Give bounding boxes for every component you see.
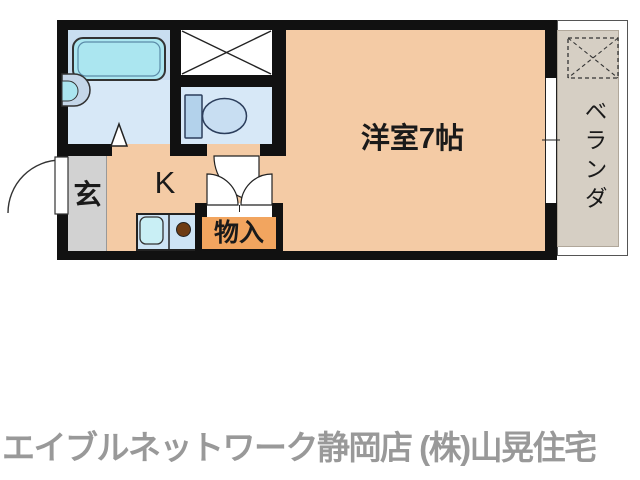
kitchen-label: K bbox=[136, 167, 194, 198]
stove-burner-icon bbox=[177, 223, 191, 237]
door-swing-icon bbox=[8, 160, 61, 213]
kitchen-sink-icon bbox=[140, 217, 163, 244]
floor-plan-page: 玄 K 物入 洋室7帖 ベランダ エイブルネットワーク静岡店 (株)山晃住宅 bbox=[0, 0, 640, 480]
toilet-icon bbox=[203, 99, 247, 134]
storage-label: 物入 bbox=[202, 221, 276, 246]
balcony-label: ベランダ bbox=[582, 99, 605, 215]
toilet-tank bbox=[185, 95, 202, 138]
company-name-text: エイブルネットワーク静岡店 (株)山晃住宅 bbox=[2, 421, 640, 469]
entrance-label: 玄 bbox=[67, 181, 108, 209]
folding-door-triangle-icon bbox=[111, 124, 127, 146]
bathtub-icon bbox=[73, 38, 165, 80]
fixtures-layer bbox=[0, 0, 640, 480]
main-room-label: 洋室7帖 bbox=[310, 125, 515, 154]
washbasin-bowl bbox=[62, 81, 78, 101]
